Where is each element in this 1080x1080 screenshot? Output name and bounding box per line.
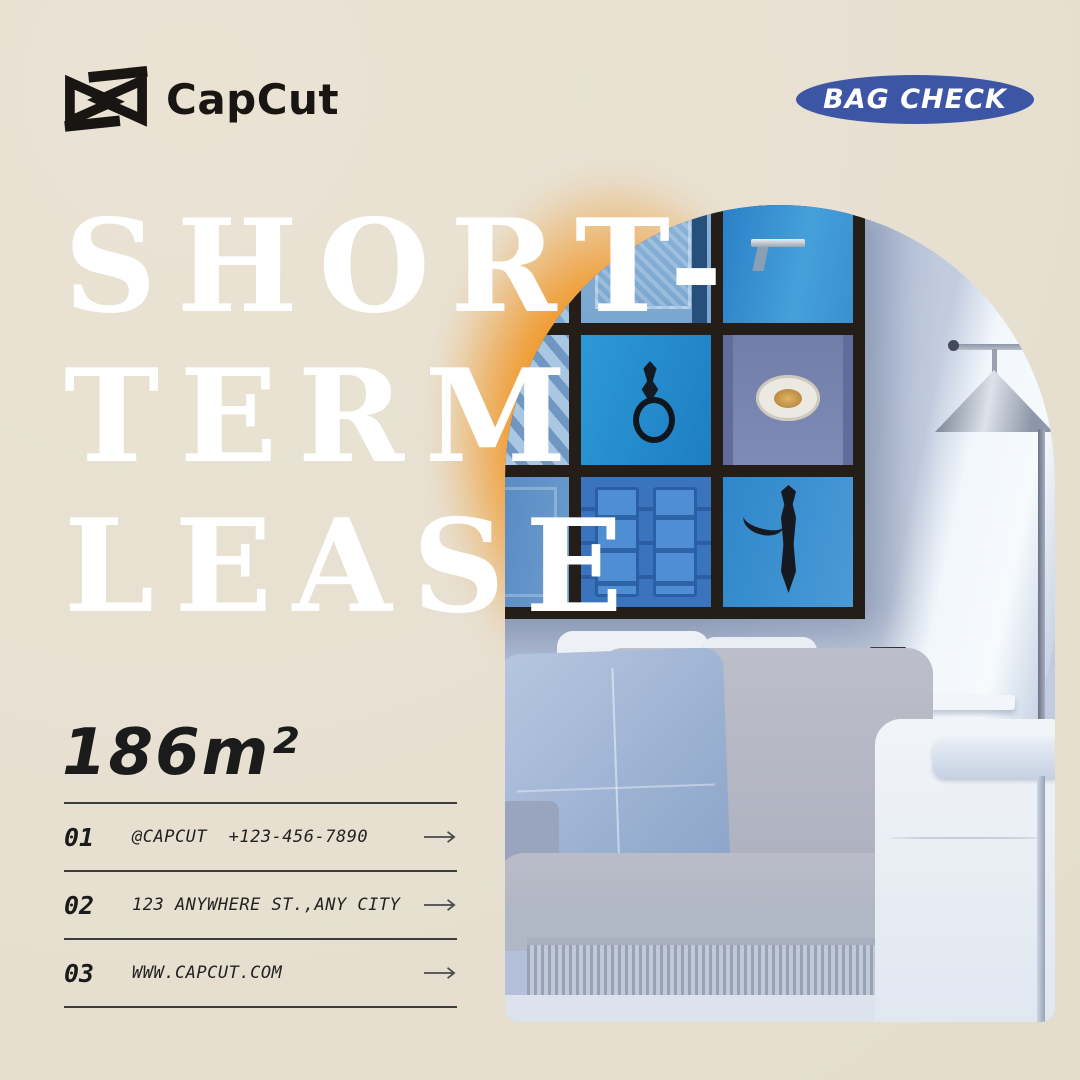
blanket-fringe	[527, 938, 931, 998]
badge-label: BAG CHECK	[823, 84, 1007, 115]
arrow-right-icon[interactable]	[423, 830, 457, 844]
arrow-right-icon[interactable]	[423, 898, 457, 912]
row-number: 01	[64, 823, 132, 852]
contact-row-2[interactable]: 02 123 ANYWHERE ST.,ANY CITY	[64, 872, 457, 938]
contact-row-3[interactable]: 03 WWW.CAPCUT.COM	[64, 940, 457, 1006]
row-number: 03	[64, 959, 132, 988]
row-text: 123 ANYWHERE ST.,ANY CITY	[132, 895, 423, 915]
c-table-top	[933, 738, 1055, 778]
floor-lamp-ball	[948, 340, 959, 351]
c-table-leg	[1037, 776, 1045, 1022]
poster-canvas: CapCut BAG CHECK	[0, 0, 1080, 1080]
title-line-3: LEASE	[64, 492, 743, 642]
row-text: @CAPCUT +123-456-7890	[132, 827, 423, 847]
brand-logo: CapCut	[62, 66, 339, 132]
area-size: 186m²	[62, 716, 300, 790]
poster-title: SHORT- TERM LEASE	[64, 192, 743, 642]
arrow-right-icon[interactable]	[423, 966, 457, 980]
floor-lamp-stem	[992, 349, 997, 373]
brand-name: CapCut	[166, 75, 339, 124]
contact-row-1[interactable]: 01 @CAPCUT +123-456-7890	[64, 804, 457, 870]
header: CapCut BAG CHECK	[62, 66, 1034, 132]
bag-check-badge[interactable]: BAG CHECK	[796, 75, 1034, 124]
row-text: WWW.CAPCUT.COM	[132, 963, 423, 983]
title-line-2: TERM	[64, 342, 743, 492]
row-number: 02	[64, 891, 132, 920]
floor-lamp-arm	[953, 344, 1029, 350]
title-line-1: SHORT-	[64, 192, 743, 342]
divider	[64, 1006, 457, 1008]
contact-list: 01 @CAPCUT +123-456-7890 02 123 ANYWHERE…	[64, 802, 457, 1008]
capcut-logo-icon	[62, 66, 150, 132]
